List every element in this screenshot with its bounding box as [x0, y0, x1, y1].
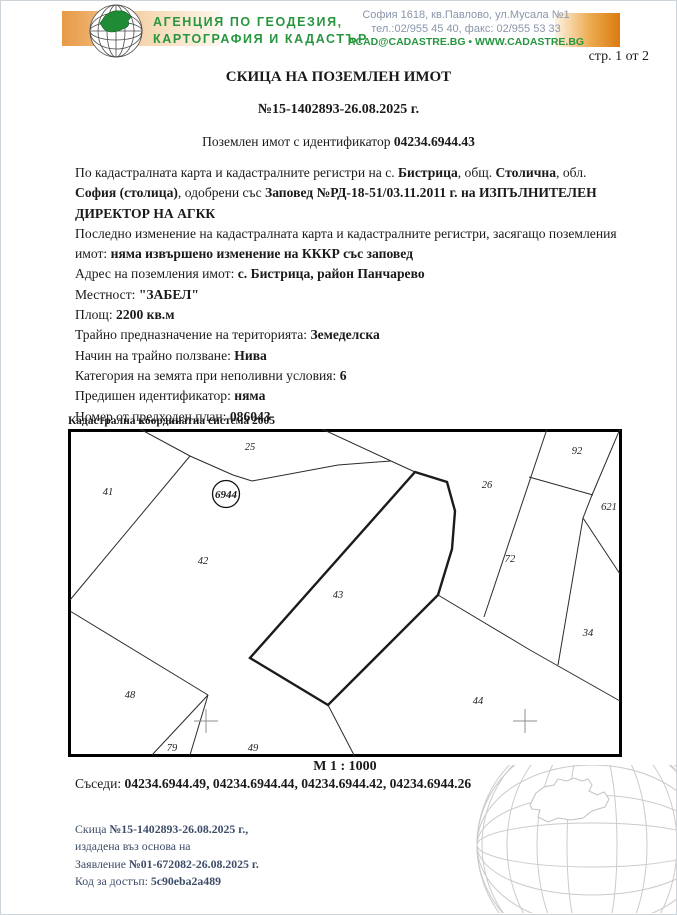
parcel-label: 92: [572, 446, 583, 457]
parcel-label: 621: [601, 502, 617, 513]
parcel-label: 26: [482, 480, 493, 491]
field-territory-purpose: Трайно предназначение на територията: Зе…: [75, 325, 622, 345]
parcel-label: 25: [245, 442, 256, 453]
globe-watermark-icon: [470, 765, 676, 913]
parcel-label: 43: [333, 590, 344, 601]
parcel-label: 34: [582, 628, 594, 639]
parcel-boundaries: [70, 429, 620, 755]
parcel-label: 44: [473, 696, 484, 707]
field-land-use: Начин на трайно ползване: Нива: [75, 346, 622, 366]
parcel-labels: 25 41 42 43 26 92 621 72 34 48 79 49 44: [103, 442, 617, 754]
property-identifier-line: Поземлен имот с идентификатор 04234.6944…: [0, 134, 677, 150]
field-area: Площ: 2200 кв.м: [75, 305, 622, 325]
subject-parcel-43-outline: [250, 472, 455, 705]
page-number: стр. 1 от 2: [589, 49, 649, 65]
document-title: СКИЦА НА ПОЗЕМЛЕН ИМОТ: [0, 69, 677, 86]
cadastral-region-number: 6944: [215, 489, 238, 501]
footer-application-line: Заявление №01-672082-26.08.2025 г.: [75, 856, 259, 873]
last-change-paragraph: Последно изменение на кадастралната карт…: [75, 224, 622, 265]
coordinate-system-label: Кадастрална координатна система 2005: [68, 415, 275, 427]
survey-cross-markers: [194, 709, 537, 733]
registry-paragraph: По кадастралната карта и кадастралните р…: [75, 163, 622, 224]
parcel-label: 41: [103, 487, 114, 498]
agency-phone: тел.:02/955 45 40, факс: 02/955 53 33: [330, 23, 602, 37]
parcel-label: 72: [505, 554, 516, 565]
parcel-label: 48: [125, 690, 136, 701]
footer-sketch-line: Скица №15-1402893-26.08.2025 г.,: [75, 821, 259, 838]
neighbors-line: Съседи: 04234.6944.49, 04234.6944.44, 04…: [75, 776, 471, 792]
parcel-label: 49: [248, 743, 259, 754]
document-number: №15-1402893-26.08.2025 г.: [0, 102, 677, 118]
agency-website: ACAD@CADASTRE.BG • WWW.CADASTRE.BG: [330, 36, 602, 50]
agency-globe-logo-icon: [88, 2, 144, 58]
cadastral-map: 6944 25 41 42 43 26 92 621 72 34 48 79 4…: [68, 429, 622, 757]
issuance-footer: Скица №15-1402893-26.08.2025 г., издаден…: [75, 821, 259, 891]
field-address: Адрес на поземления имот: с. Бистрица, р…: [75, 264, 622, 284]
parcel-label: 42: [198, 556, 209, 567]
map-scale-label: М 1 : 1000: [68, 759, 622, 775]
agency-contact-block: София 1618, кв.Павлово, ул.Мусала №1 тел…: [330, 9, 602, 50]
field-previous-identifier: Предишен идентификатор: няма: [75, 386, 622, 406]
property-details: По кадастралната карта и кадастралните р…: [75, 163, 622, 427]
field-land-category: Категория на земята при неполивни услови…: [75, 366, 622, 386]
agency-address: София 1618, кв.Павлово, ул.Мусала №1: [330, 9, 602, 23]
field-locality: Местност: "ЗАБЕЛ": [75, 285, 622, 305]
cadastral-sketch-page: { "colors": { "agency_green": "#27963f",…: [0, 0, 677, 915]
footer-access-code-line: Код за достъп: 5c90eba2a489: [75, 873, 259, 890]
parcel-label: 79: [167, 743, 178, 754]
footer-issued-line: издадена въз основа на: [75, 838, 259, 855]
